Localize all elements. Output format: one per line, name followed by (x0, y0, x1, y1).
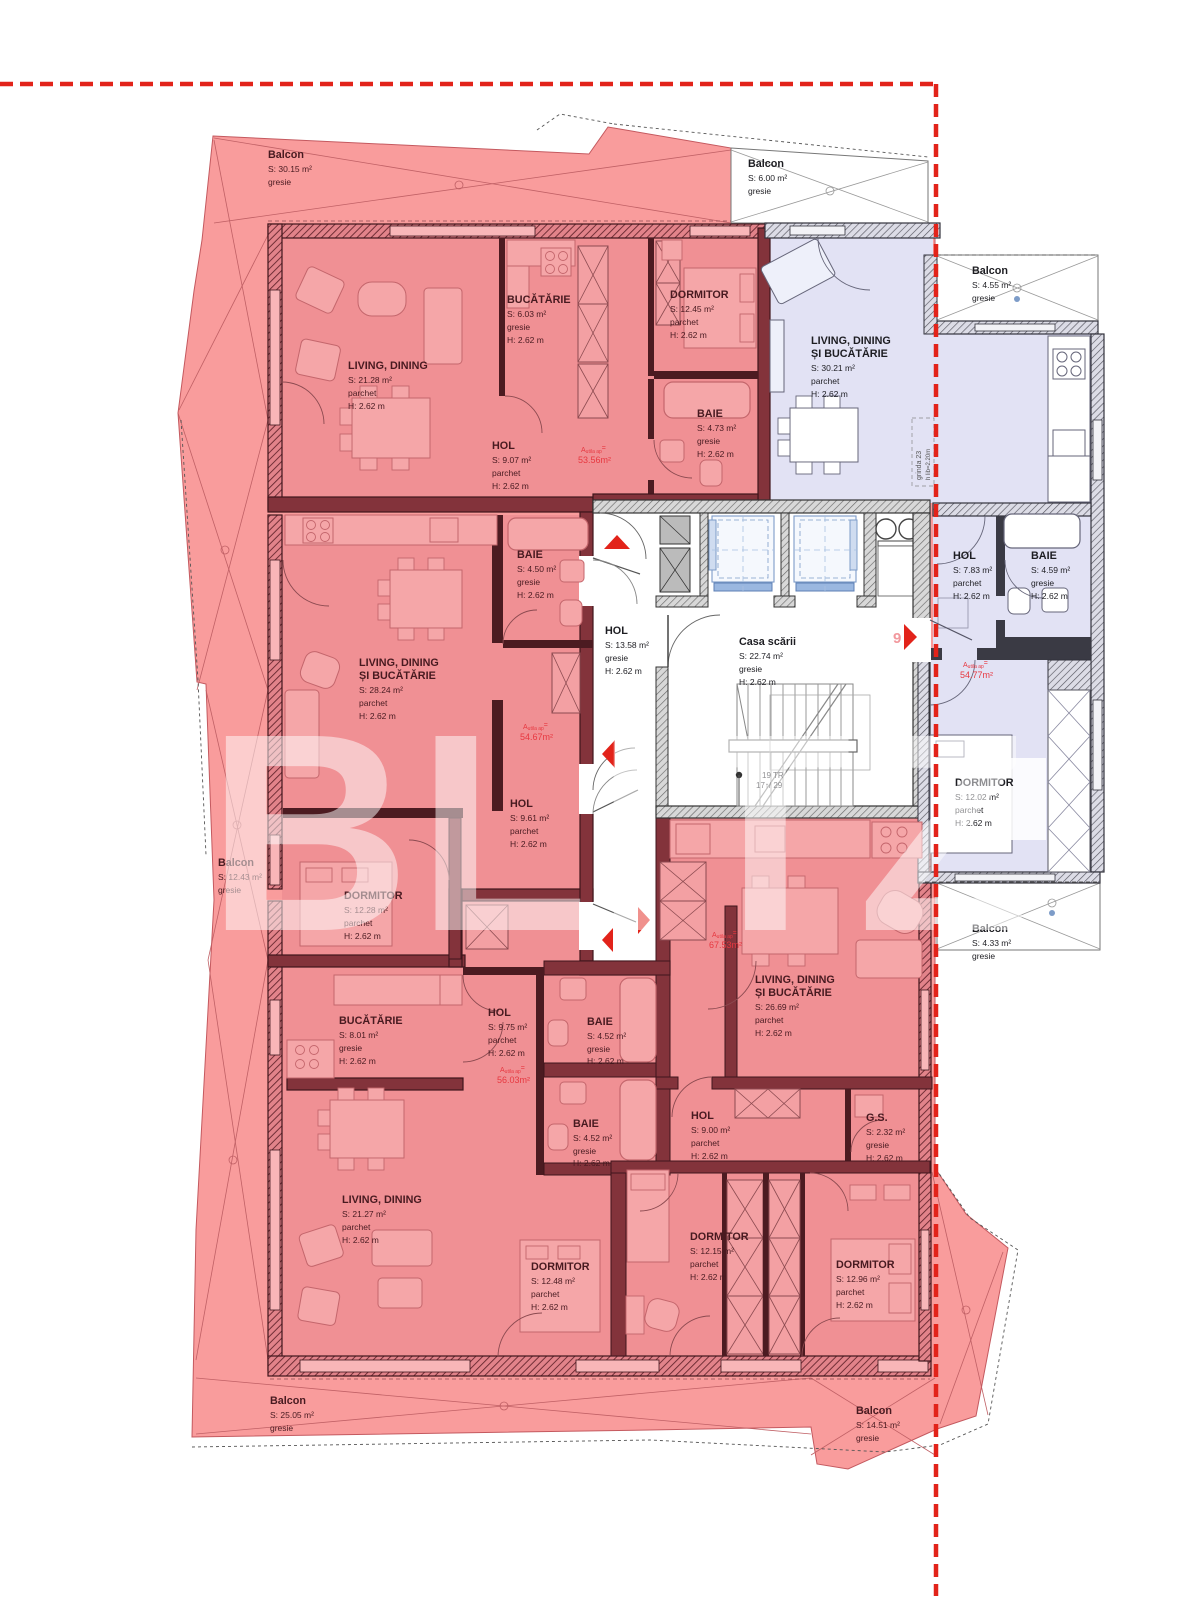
svg-text:S: 4.55 m²: S: 4.55 m² (972, 280, 1011, 290)
svg-text:S: 9.07 m²: S: 9.07 m² (492, 455, 531, 465)
svg-text:gresie: gresie (697, 436, 720, 446)
svg-text:S: 4.52 m²: S: 4.52 m² (573, 1133, 612, 1143)
svg-text:parchet: parchet (836, 1287, 865, 1297)
svg-text:BLITZ: BLITZ (207, 675, 1036, 990)
svg-text:S: 13.58 m²: S: 13.58 m² (605, 640, 649, 650)
svg-text:H: 2.62 m: H: 2.62 m (811, 389, 848, 399)
svg-text:grinda 23: grinda 23 (916, 451, 923, 480)
svg-text:parchet: parchet (531, 1289, 560, 1299)
svg-text:S: 12.45 m²: S: 12.45 m² (670, 304, 714, 314)
svg-text:S: 22.74 m²: S: 22.74 m² (739, 651, 783, 661)
svg-text:S: 21.28 m²: S: 21.28 m² (348, 375, 392, 385)
svg-text:H: 2.62 m: H: 2.62 m (1031, 591, 1068, 601)
svg-text:parchet: parchet (488, 1035, 517, 1045)
svg-text:BAIE: BAIE (697, 408, 723, 420)
svg-text:Balcon: Balcon (268, 149, 304, 161)
svg-text:H: 2.62 m: H: 2.62 m (755, 1028, 792, 1038)
svg-text:H: 2.62 m: H: 2.62 m (342, 1235, 379, 1245)
svg-text:gresie: gresie (605, 653, 628, 663)
svg-text:parchet: parchet (953, 578, 982, 588)
svg-text:h lib=2.20m: h lib=2.20m (926, 449, 932, 480)
svg-text:9: 9 (893, 630, 901, 647)
svg-text:BAIE: BAIE (573, 1118, 599, 1130)
svg-text:gresie: gresie (856, 1433, 879, 1443)
svg-text:H: 2.62 m: H: 2.62 m (339, 1056, 376, 1066)
svg-text:H: 2.62 m: H: 2.62 m (531, 1302, 568, 1312)
svg-text:53.56m²: 53.56m² (578, 455, 611, 465)
svg-text:gresie: gresie (573, 1146, 596, 1156)
svg-text:HOL: HOL (488, 1007, 511, 1019)
svg-text:H: 2.62 m: H: 2.62 m (348, 401, 385, 411)
svg-text:HOL: HOL (605, 625, 628, 637)
svg-text:S: 30.21 m²: S: 30.21 m² (811, 363, 855, 373)
svg-text:HOL: HOL (492, 440, 515, 452)
svg-text:parchet: parchet (670, 317, 699, 327)
svg-text:Balcon: Balcon (856, 1405, 892, 1417)
svg-text:H: 2.62 m: H: 2.62 m (691, 1151, 728, 1161)
svg-text:BAIE: BAIE (517, 549, 543, 561)
svg-text:LIVING, DINING: LIVING, DINING (348, 360, 428, 372)
svg-text:H: 2.62 m: H: 2.62 m (517, 590, 554, 600)
svg-text:BAIE: BAIE (587, 1016, 613, 1028)
svg-text:HOL: HOL (953, 550, 976, 562)
svg-text:H: 2.62 m: H: 2.62 m (953, 591, 990, 601)
svg-text:LIVING, DINING: LIVING, DINING (359, 657, 439, 669)
svg-text:parchet: parchet (690, 1259, 719, 1269)
svg-text:BUCĂTĂRIE: BUCĂTĂRIE (507, 293, 571, 306)
svg-text:gresie: gresie (866, 1140, 889, 1150)
svg-text:H: 2.62 m: H: 2.62 m (697, 449, 734, 459)
svg-text:S: 4.52 m²: S: 4.52 m² (587, 1031, 626, 1041)
svg-text:gresie: gresie (748, 186, 771, 196)
svg-text:S: 25.05 m²: S: 25.05 m² (270, 1410, 314, 1420)
svg-text:H: 2.62 m: H: 2.62 m (488, 1048, 525, 1058)
svg-text:H: 2.62 m: H: 2.62 m (587, 1056, 624, 1066)
svg-text:H: 2.62 m: H: 2.62 m (492, 481, 529, 491)
svg-text:S: 6.00 m²: S: 6.00 m² (748, 173, 787, 183)
svg-text:S: 8.01 m²: S: 8.01 m² (339, 1030, 378, 1040)
svg-text:S: 9.75 m²: S: 9.75 m² (488, 1022, 527, 1032)
svg-text:parchet: parchet (348, 388, 377, 398)
svg-text:gresie: gresie (1031, 578, 1054, 588)
svg-text:56.03m²: 56.03m² (497, 1075, 530, 1085)
svg-text:H: 2.62 m: H: 2.62 m (866, 1153, 903, 1163)
svg-text:LIVING, DINING: LIVING, DINING (342, 1194, 422, 1206)
svg-text:G.S.: G.S. (866, 1112, 888, 1124)
svg-text:parchet: parchet (492, 468, 521, 478)
svg-text:parchet: parchet (811, 376, 840, 386)
svg-text:Balcon: Balcon (972, 265, 1008, 277)
svg-text:S: 26.69 m²: S: 26.69 m² (755, 1002, 799, 1012)
svg-text:HOL: HOL (691, 1110, 714, 1122)
svg-text:gresie: gresie (972, 293, 995, 303)
svg-text:S: 4.59 m²: S: 4.59 m² (1031, 565, 1070, 575)
svg-text:gresie: gresie (507, 322, 530, 332)
svg-text:S: 4.50 m²: S: 4.50 m² (517, 564, 556, 574)
svg-text:Casa scării: Casa scării (739, 636, 796, 648)
svg-text:S: 12.48 m²: S: 12.48 m² (531, 1276, 575, 1286)
svg-text:DORMITOR: DORMITOR (836, 1259, 895, 1271)
svg-text:gresie: gresie (268, 177, 291, 187)
svg-text:S: 2.32 m²: S: 2.32 m² (866, 1127, 905, 1137)
svg-text:S: 14.51 m²: S: 14.51 m² (856, 1420, 900, 1430)
svg-text:H: 2.62 m: H: 2.62 m (573, 1158, 610, 1168)
svg-text:parchet: parchet (342, 1222, 371, 1232)
svg-text:DORMITOR: DORMITOR (690, 1231, 749, 1243)
svg-text:H: 2.62 m: H: 2.62 m (670, 330, 707, 340)
svg-text:S: 30.15 m²: S: 30.15 m² (268, 164, 312, 174)
svg-text:gresie: gresie (739, 664, 762, 674)
svg-text:H: 2.62 m: H: 2.62 m (836, 1300, 873, 1310)
svg-text:gresie: gresie (517, 577, 540, 587)
svg-text:S: 6.03 m²: S: 6.03 m² (507, 309, 546, 319)
svg-text:DORMITOR: DORMITOR (670, 289, 729, 301)
svg-text:gresie: gresie (270, 1423, 293, 1433)
svg-text:S: 12.96 m²: S: 12.96 m² (836, 1274, 880, 1284)
svg-text:parchet: parchet (691, 1138, 720, 1148)
svg-text:ȘI BUCĂTĂRIE: ȘI BUCĂTĂRIE (811, 347, 888, 360)
svg-text:gresie: gresie (587, 1044, 610, 1054)
svg-text:H: 2.62 m: H: 2.62 m (507, 335, 544, 345)
svg-text:S: 21.27 m²: S: 21.27 m² (342, 1209, 386, 1219)
svg-text:S: 7.83 m²: S: 7.83 m² (953, 565, 992, 575)
svg-text:H: 2.62 m: H: 2.62 m (690, 1272, 727, 1282)
svg-text:Balcon: Balcon (270, 1395, 306, 1407)
svg-text:S: 12.15 m²: S: 12.15 m² (690, 1246, 734, 1256)
svg-text:DORMITOR: DORMITOR (531, 1261, 590, 1273)
svg-text:gresie: gresie (339, 1043, 362, 1053)
svg-text:Balcon: Balcon (748, 158, 784, 170)
svg-text:LIVING, DINING: LIVING, DINING (811, 335, 891, 347)
svg-text:BUCĂTĂRIE: BUCĂTĂRIE (339, 1014, 403, 1027)
svg-text:BAIE: BAIE (1031, 550, 1057, 562)
svg-text:parchet: parchet (755, 1015, 784, 1025)
svg-text:S: 9.00 m²: S: 9.00 m² (691, 1125, 730, 1135)
svg-text:S: 4.73 m²: S: 4.73 m² (697, 423, 736, 433)
